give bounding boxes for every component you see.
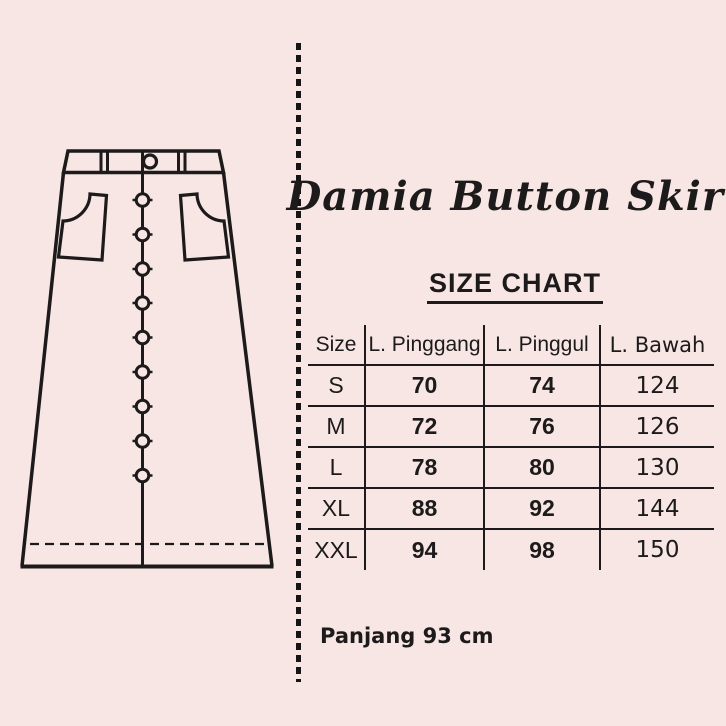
cell-pinggang: 72 — [365, 406, 484, 447]
table-row: XXL 94 98 150 — [308, 529, 714, 570]
cell-pinggul: 76 — [484, 406, 600, 447]
size-chart-heading-text: SIZE CHART — [427, 268, 603, 304]
cell-size: M — [308, 406, 365, 447]
column-header-pinggul: L. Pinggul — [484, 325, 600, 365]
skirt-illustration — [0, 0, 300, 726]
cell-bawah: 126 — [600, 406, 714, 447]
table-row: XL 88 92 144 — [308, 488, 714, 529]
cell-size: L — [308, 447, 365, 488]
table-row: S 70 74 124 — [308, 365, 714, 406]
cell-size: XL — [308, 488, 365, 529]
cell-bawah: 150 — [600, 529, 714, 570]
cell-pinggang: 70 — [365, 365, 484, 406]
table-row: M 72 76 126 — [308, 406, 714, 447]
cell-size: XXL — [308, 529, 365, 570]
table-header-row: Size L. Pinggang L. Pinggul L. Bawah — [308, 325, 714, 365]
size-chart-infographic: Damia Button Skirt SIZE CHART Size L. Pi… — [0, 0, 726, 726]
cell-bawah: 130 — [600, 447, 714, 488]
cell-pinggang: 78 — [365, 447, 484, 488]
cell-pinggul: 92 — [484, 488, 600, 529]
cell-pinggang: 88 — [365, 488, 484, 529]
placket-buttons — [133, 194, 153, 482]
cell-pinggul: 80 — [484, 447, 600, 488]
column-header-pinggang: L. Pinggang — [365, 325, 484, 365]
cell-pinggul: 98 — [484, 529, 600, 570]
dashed-divider — [296, 43, 301, 682]
cell-bawah: 124 — [600, 365, 714, 406]
column-header-bawah: L. Bawah — [600, 325, 714, 365]
table-row: L 78 80 130 — [308, 447, 714, 488]
cell-bawah: 144 — [600, 488, 714, 529]
column-header-size: Size — [308, 325, 365, 365]
product-title: Damia Button Skirt — [304, 154, 726, 238]
cell-size: S — [308, 365, 365, 406]
cell-pinggang: 94 — [365, 529, 484, 570]
size-chart-heading: SIZE CHART — [304, 268, 726, 299]
right-pocket — [181, 194, 229, 260]
waistband-button — [144, 155, 157, 168]
left-pocket — [59, 194, 107, 260]
size-chart-table: Size L. Pinggang L. Pinggul L. Bawah S 7… — [308, 325, 714, 570]
length-note: Panjang 93 cm — [320, 624, 493, 648]
cell-pinggul: 74 — [484, 365, 600, 406]
